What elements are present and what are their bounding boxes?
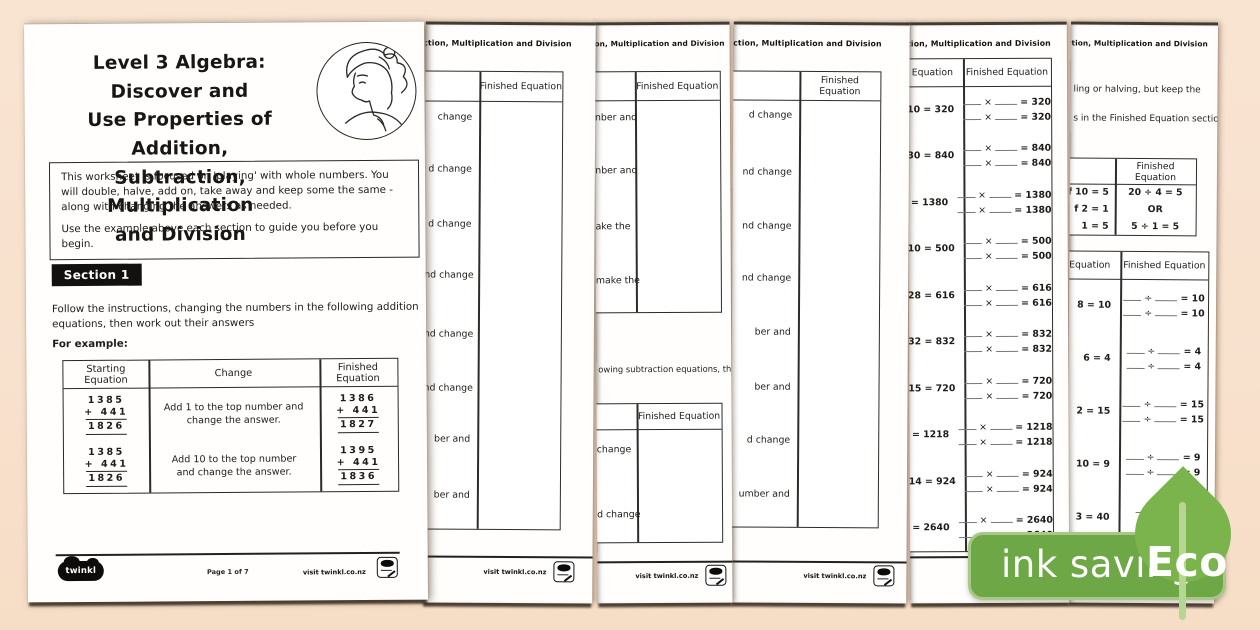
starting-equation-fragment: 10 = 9 [1067,458,1119,470]
finished-equation-header: Finished Equation [479,81,562,93]
change-text-fragment: nd change [424,269,471,280]
finished-equation-line: × = 840 [963,142,1051,154]
change-text-fragment: make the [596,275,629,286]
starting-equation-fragment: 10 = 500 [908,243,964,254]
child-portrait-illustration [316,42,417,141]
starting-equation-fragment: 32 = 832 [908,336,964,347]
finished-equation-text: 5 ÷ 1 = 5 [1115,221,1196,233]
twinkl-stamp-icon [705,565,726,586]
finished-equation-header: Finished Equation [963,67,1051,78]
twinkl-stamp-icon [377,557,398,578]
starting-equation-header-fragment: Equation [1067,259,1120,271]
finished-equation-line: × = 840 [963,157,1051,169]
finished-equation-text: OR [1115,204,1196,216]
change-text-fragment: nber and [595,112,628,123]
starting-equation-fragment: 28 = 616 [908,290,964,301]
change-table-2: Finished Equation [594,403,723,544]
division-example-table: Finished Equation f 10 = 5 20 ÷ 4 = 5 f … [1067,157,1197,236]
change-text-fragment: nd change [732,220,791,231]
change-text-fragment: ber and [732,381,791,392]
change-text-fragment: change [425,111,472,122]
change-text-fragment: d change [425,218,472,229]
finished-equation-line: × = 1380 [957,203,1051,215]
equation-row: 6 = 4 ÷ = 4 ÷ = 4 [1067,331,1208,385]
finished-equation: 1395 + 441 1836 [319,444,398,486]
worksheet-page-2: btraction, Multiplication and Division F… [422,21,596,603]
table-row: 1385 + 441 1826 Add 1 to the top number … [64,387,398,441]
finished-equation-header: Finished Equation [1120,260,1208,272]
col-header-starting: Starting Equation [63,363,148,386]
footer-divider [597,561,732,563]
finished-equation-line: ÷ = 15 [1123,398,1204,411]
finished-equation-line: × = 500 [964,235,1052,247]
equation-row: 8 = 10 ÷ = 10 ÷ = 10 [1067,278,1208,332]
worksheet-page-4: btraction, Multiplication and Division F… [730,21,910,603]
equation-row: 30 = 840 × = 840 × = 840 [908,132,1052,179]
visit-link: visit twinkl.co.nz [803,572,866,580]
page-header-fragment: btraction, Multiplication and Division [730,38,881,48]
starting-equation-fragment: 30 = 1380 [908,197,957,208]
finished-equation-line: × = 1218 [958,436,1052,448]
starting-equation-fragment: 22 = 2640 [908,522,959,533]
twinkl-stamp-icon [553,561,574,582]
starting-equation-fragment: 10 = 320 [908,104,963,115]
starting-equation-header-fragment: g Equation [908,67,963,78]
equation-row: 32 = 832 × = 832 × = 832 [908,318,1052,365]
worksheet-page-3: btraction, Multiplication and Division F… [594,22,732,604]
finished-equation-text: 20 ÷ 4 = 5 [1115,187,1196,199]
finished-equation-line: ÷ = 10 [1123,307,1204,320]
section-text-fragment: ling or halving, but keep the [1074,85,1201,96]
finished-equation-line: ÷ = 10 [1123,292,1204,305]
example-table-header: Starting Equation Change Finished Equati… [63,359,397,389]
example-row: 1 = 5 5 ÷ 1 = 5 [1067,217,1196,235]
finished-equation-line: × = 616 [964,296,1052,308]
finished-equation-line: ÷ = 15 [1123,413,1204,426]
change-text-fragment: change [597,444,630,455]
finished-equation-line: × = 832 [964,328,1052,340]
section-text-fragment: s in the Finished Equation section. [1073,114,1218,125]
visit-link: visit twinkl.co.nz [635,572,698,580]
change-text-fragment: nd change [733,166,792,177]
page-header-fragment: btraction, Multiplication and Division [908,39,1051,49]
visit-link: visit twinkl.co.nz [483,568,546,576]
change-text-fragment: d change [425,163,472,174]
finished-equation-line: × = 832 [964,343,1052,355]
change-table: Finished Equation [730,70,881,528]
finished-equation-line: × = 2640 [959,514,1053,526]
example-table: Starting Equation Change Finished Equati… [62,358,399,494]
worksheet-page-1: Level 3 Algebra: Discover and Use Proper… [24,21,428,603]
finished-equation-header: Finished Equation [799,75,880,97]
finished-equation-line: × = 320 [963,110,1051,122]
change-text-fragment: d change [731,434,790,445]
starting-equation: 1385 + 441 1826 [64,446,149,488]
finished-equation-header: Finished Equation [637,411,722,422]
starting-equation-fragment: 14 = 924 [908,476,965,487]
example-row: f 2 = 1 OR [1067,200,1196,218]
intro-paragraph: Use the example above each section to gu… [61,219,407,251]
finished-equation-line: × = 924 [965,467,1053,479]
twinkl-stamp-icon [873,565,894,586]
change-text-fragment: ber and [732,326,791,337]
table-row: 1385 + 441 1826 Add 10 to the top number… [64,439,398,493]
page-header-fragment: btraction, Multiplication and Division [594,39,724,49]
finished-equation-line: × = 720 [964,389,1052,401]
finished-equation-line: ÷ = 4 [1126,360,1201,373]
page-header-fragment: btraction, Multiplication and Division [422,38,571,48]
twinkl-logo: twinkl [58,561,104,581]
section-instructions: Follow the instructions, changing the nu… [52,300,424,332]
col-header-finished: Finished Equation [318,361,397,384]
finished-equation-line: × = 1218 [958,421,1052,433]
change-text-fragment: ber and [423,489,470,500]
starting-equation-fragment: 21 = 1218 [908,429,958,440]
change-text-fragment: nd change [732,272,791,283]
finished-equation-line: × = 320 [963,95,1051,107]
starting-equation-fragment: 2 = 15 [1067,405,1119,417]
starting-equation-fragment: 6 = 4 [1067,352,1120,364]
example-row: f 10 = 5 20 ÷ 4 = 5 [1067,183,1196,201]
equation-row: 15 = 720 × = 720 × = 720 [908,365,1053,412]
change-text-fragment: ber and [423,433,470,444]
change-instruction: Add 10 to the top number and change the … [149,452,319,480]
starting-equation-fragment: 30 = 840 [908,150,964,161]
worksheet-page-5: btraction, Multiplication and Division g… [908,22,1070,604]
title-line: Use Properties of Addition, [87,109,272,160]
change-text-fragment: umber and [731,488,790,499]
equation-row: 21 = 1218 × = 1218 × = 1218 [908,411,1053,458]
visit-link: visit twinkl.co.nz [303,568,366,576]
finished-equation-line: × = 1380 [957,188,1051,200]
equation-row: 2 = 15 ÷ = 15 ÷ = 15 [1067,384,1208,438]
finished-equation-line: × = 616 [964,281,1052,293]
change-instruction: Add 1 to the top number and change the a… [149,400,319,428]
starting-equation-fragment: f 10 = 5 [1067,186,1115,198]
page-header-fragment: btraction, Multiplication and Division [1067,38,1208,48]
equation-row: 30 = 1380 × = 1380 × = 1380 [908,179,1052,226]
change-table: Finished Equation [422,70,563,530]
section-1-label: Section 1 [52,264,142,287]
intro-paragraph: This worksheet is focused on 'playing' w… [61,168,407,215]
finished-equation-line: × = 924 [965,482,1053,494]
finished-equation-header: Finished Equation [1115,160,1196,183]
footer-divider [423,555,593,558]
starting-equation-fragment: 8 = 10 [1067,299,1120,311]
finished-equation: 1386 + 441 1827 [319,392,398,434]
finished-equation-header: Finished Equation [635,80,720,91]
equation-row: 10 = 320 × = 320 × = 320 [908,86,1051,133]
for-example-label: For example: [52,338,128,351]
eco-label: Eco [1146,538,1228,586]
change-text-fragment: d change [733,109,792,120]
starting-equation-fragment: 3 = 40 [1067,511,1119,523]
footer-divider [56,552,400,556]
change-text-fragment: d change [597,509,630,520]
equation-row: 14 = 924 × = 924 × = 924 [908,458,1053,505]
finished-equation-line: ÷ = 9 [1126,451,1201,464]
starting-equation-fragment: 15 = 720 [908,383,965,394]
finished-equation-line: × = 500 [964,250,1052,262]
col-header-change: Change [148,367,318,379]
change-text-fragment: nber and [595,165,628,176]
starting-equation-fragment: 1 = 5 [1067,220,1115,232]
section-text-fragment: owing subtraction equations, then [598,364,732,375]
starting-equation: 1385 + 441 1826 [64,394,149,436]
footer-divider [730,560,906,563]
intro-box: This worksheet is focused on 'playing' w… [49,160,420,260]
worksheet-preview: Level 3 Algebra: Discover and Use Proper… [0,0,1260,630]
equation-row: 28 = 616 × = 616 × = 616 [908,272,1052,319]
change-text-fragment: nd change [424,328,471,339]
multiplication-table: g Equation Finished Equation 10 = 320 × … [908,58,1054,553]
change-text-fragment: ake the [596,221,629,232]
equation-row: 10 = 500 × = 500 × = 500 [908,225,1052,272]
starting-equation-fragment: f 2 = 1 [1067,203,1115,215]
finished-equation-line: ÷ = 4 [1126,345,1201,358]
change-text-fragment: nd change [424,382,471,393]
finished-equation-line: × = 720 [964,374,1052,386]
title-line: Level 3 Algebra: Discover and [93,52,266,103]
